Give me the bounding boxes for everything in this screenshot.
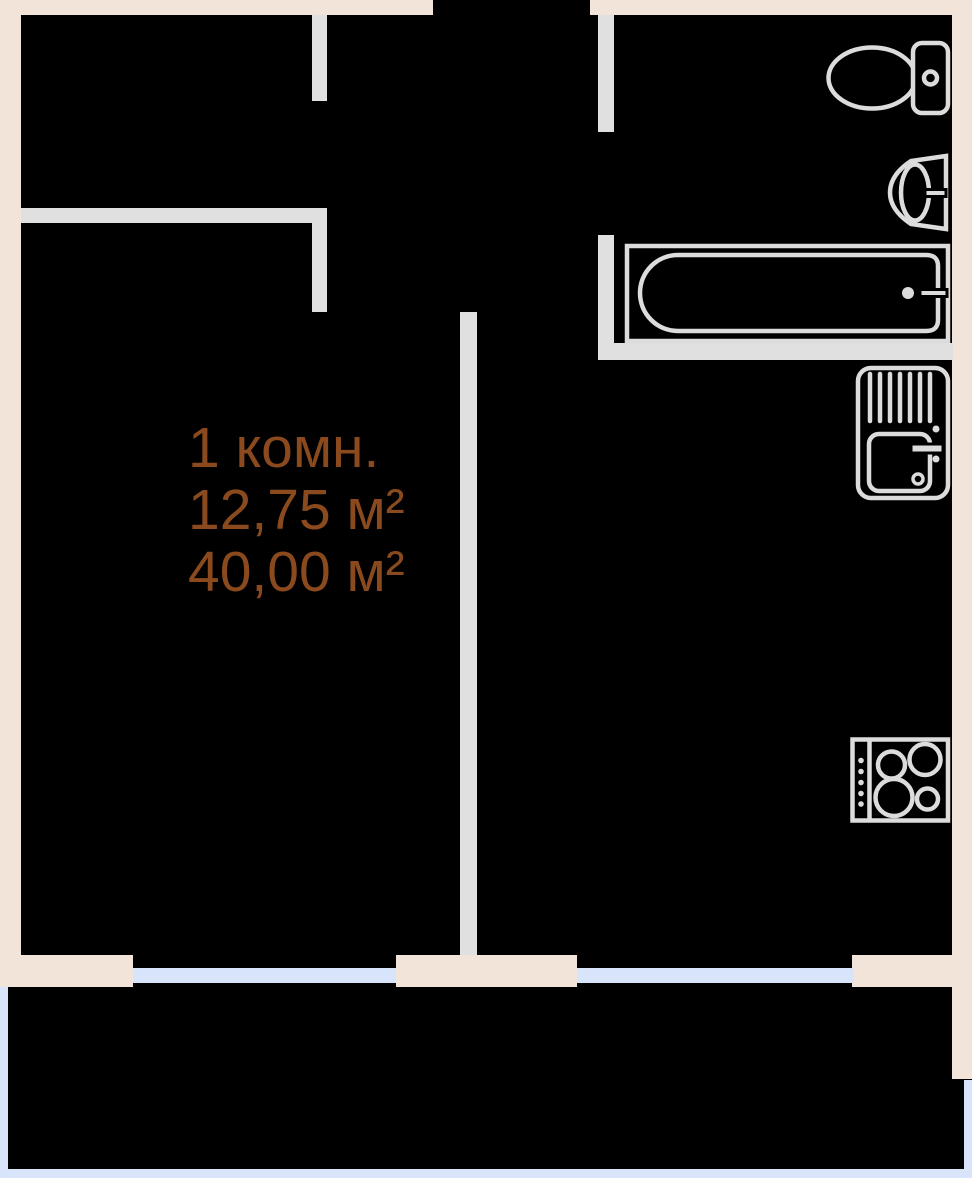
window-right (577, 968, 854, 983)
stove-icon (853, 740, 949, 821)
balcony-glazing-left (0, 987, 8, 1178)
balcony-glazing-bottom (0, 1169, 972, 1178)
window-sill-right (852, 955, 972, 987)
exterior-wall-top-left (0, 0, 433, 15)
kitchen-sink-icon (858, 368, 948, 498)
window-left (133, 968, 396, 983)
toilet-icon (829, 43, 949, 113)
room-corner-wall (312, 223, 327, 312)
bathroom-bottom-wall (598, 343, 953, 360)
window-sill-left (0, 955, 133, 987)
fixtures-layer (0, 0, 972, 1178)
room-top-wall (21, 208, 327, 223)
window-sill-center (396, 955, 577, 987)
apartment-label: 1 комн. 12,75 м² 40,00 м² (188, 417, 405, 603)
exterior-wall-top-right (590, 0, 972, 15)
central-wall (460, 312, 477, 955)
balcony-glazing-right (964, 1080, 972, 1178)
exterior-wall-left (0, 0, 21, 957)
bathroom-wall-lower (598, 235, 614, 360)
bathroom-sink-icon (890, 156, 946, 229)
closet-wall (312, 15, 327, 101)
exterior-wall-right (952, 0, 972, 1079)
bathroom-wall-upper (598, 15, 614, 132)
living-area-label: 12,75 м² (188, 479, 405, 541)
total-area-label: 40,00 м² (188, 541, 405, 603)
room-count-label: 1 комн. (188, 417, 405, 479)
bathtub-icon (627, 246, 948, 341)
floor-plan[interactable]: 1 комн. 12,75 м² 40,00 м² (0, 0, 972, 1178)
